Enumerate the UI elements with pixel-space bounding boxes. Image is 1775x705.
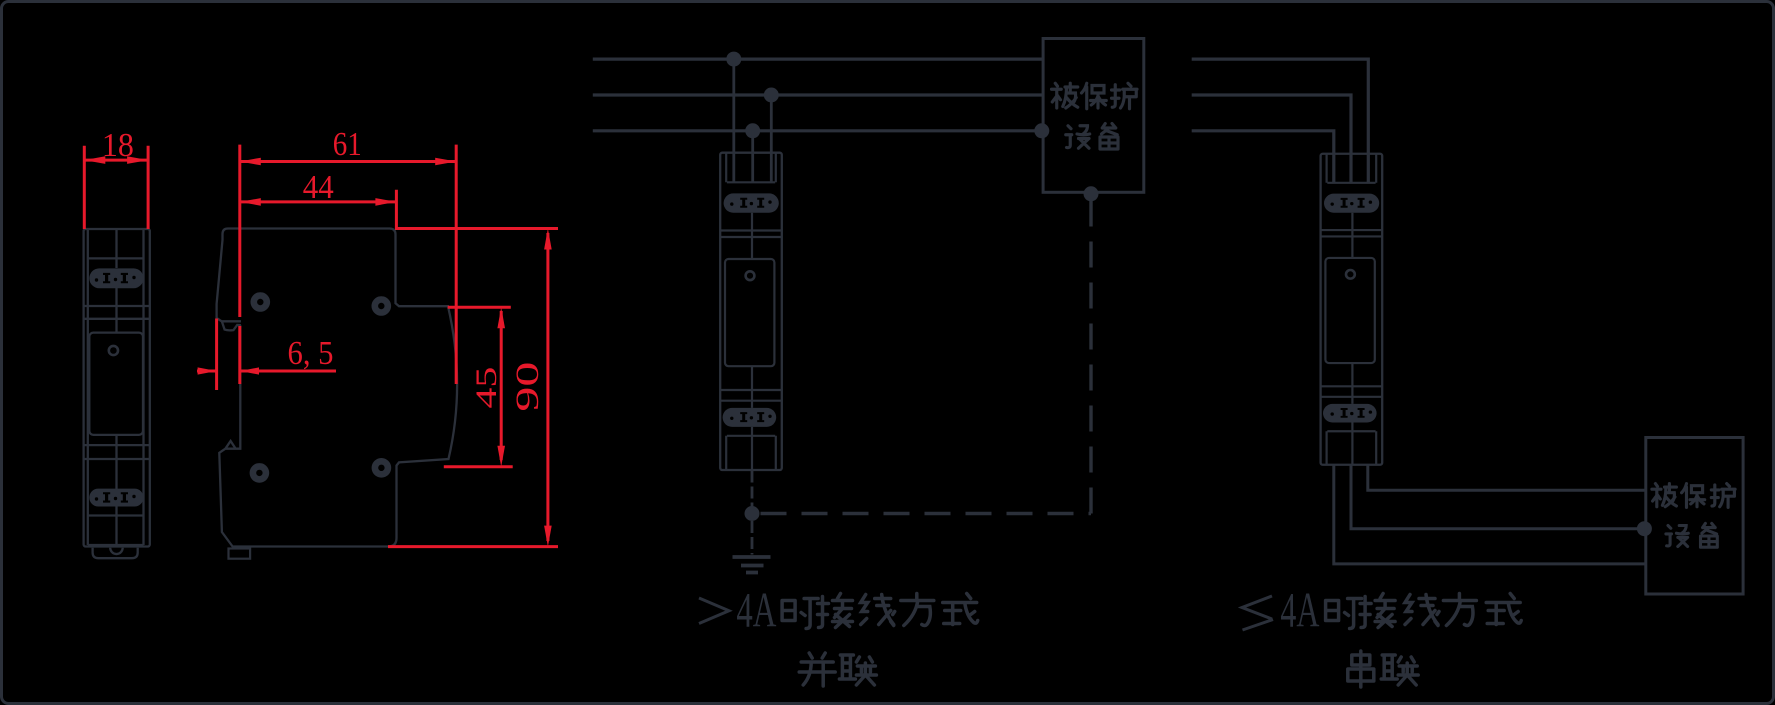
svg-text:4A: 4A <box>736 581 776 637</box>
svg-text:61: 61 <box>333 126 362 163</box>
svg-text:6, 5: 6, 5 <box>288 335 334 372</box>
svg-text:4A: 4A <box>1280 581 1319 637</box>
svg-text:44: 44 <box>303 169 334 206</box>
svg-text:90: 90 <box>510 362 546 412</box>
svg-text:18: 18 <box>102 127 134 164</box>
svg-text:45: 45 <box>470 367 503 409</box>
